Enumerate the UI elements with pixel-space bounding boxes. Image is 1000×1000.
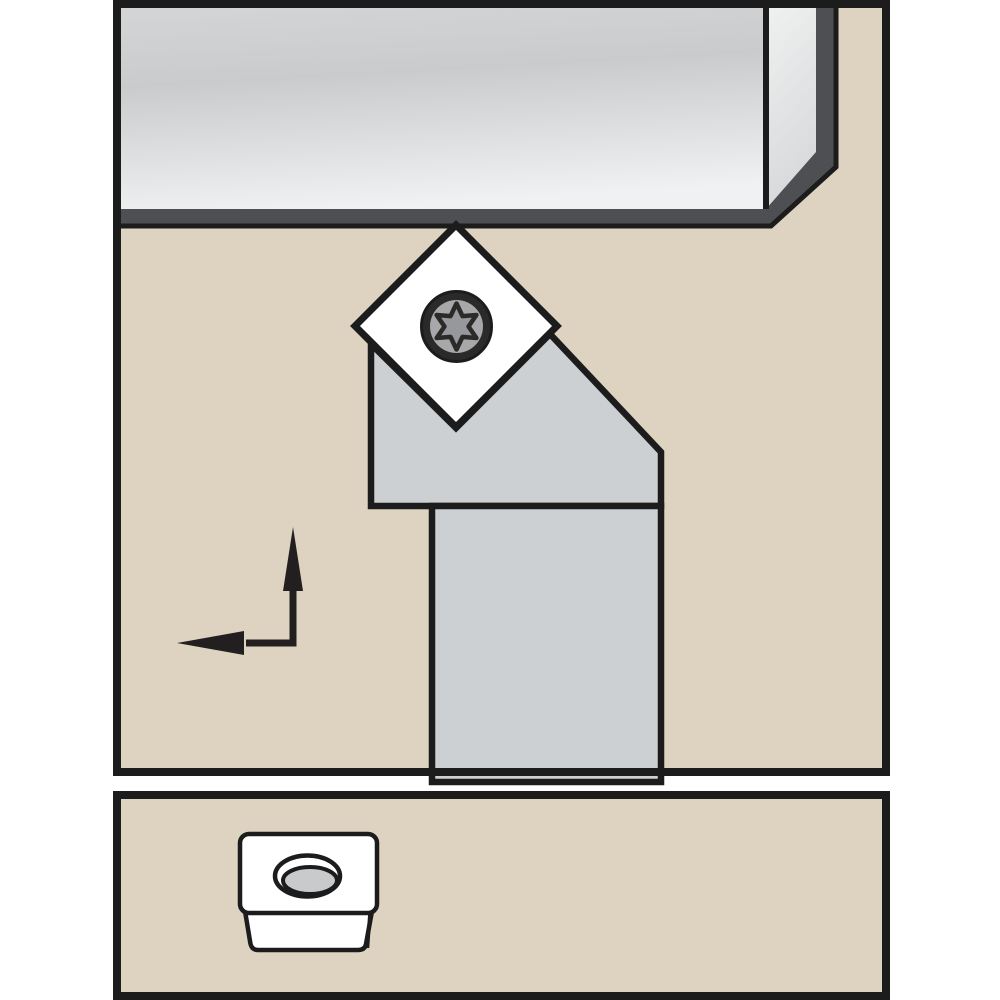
- tool-diagram: [0, 0, 1000, 1000]
- workpiece: [117, 0, 836, 226]
- frame-bottom: [113, 992, 890, 1000]
- frame-bottom: [113, 768, 890, 776]
- insert-side-edge-line: [368, 912, 371, 948]
- frame-top: [113, 791, 890, 799]
- insert-front-face: [245, 911, 372, 950]
- frame-left: [113, 791, 121, 1000]
- insert-detail-panel: [113, 791, 890, 1000]
- frame-right: [882, 0, 890, 776]
- tool-diagram-page: [0, 0, 1000, 1000]
- frame-right: [882, 791, 890, 1000]
- frame-top: [113, 0, 890, 8]
- main-view-panel: [113, 0, 890, 782]
- insert-hole-bore: [283, 867, 337, 894]
- frame-left: [113, 0, 121, 776]
- insert-3d-view: [240, 834, 377, 950]
- workpiece-front-face: [117, 0, 766, 209]
- detail-panel-background: [113, 791, 890, 1000]
- clamp-screw: [422, 292, 492, 362]
- tool-holder-shank: [432, 506, 661, 782]
